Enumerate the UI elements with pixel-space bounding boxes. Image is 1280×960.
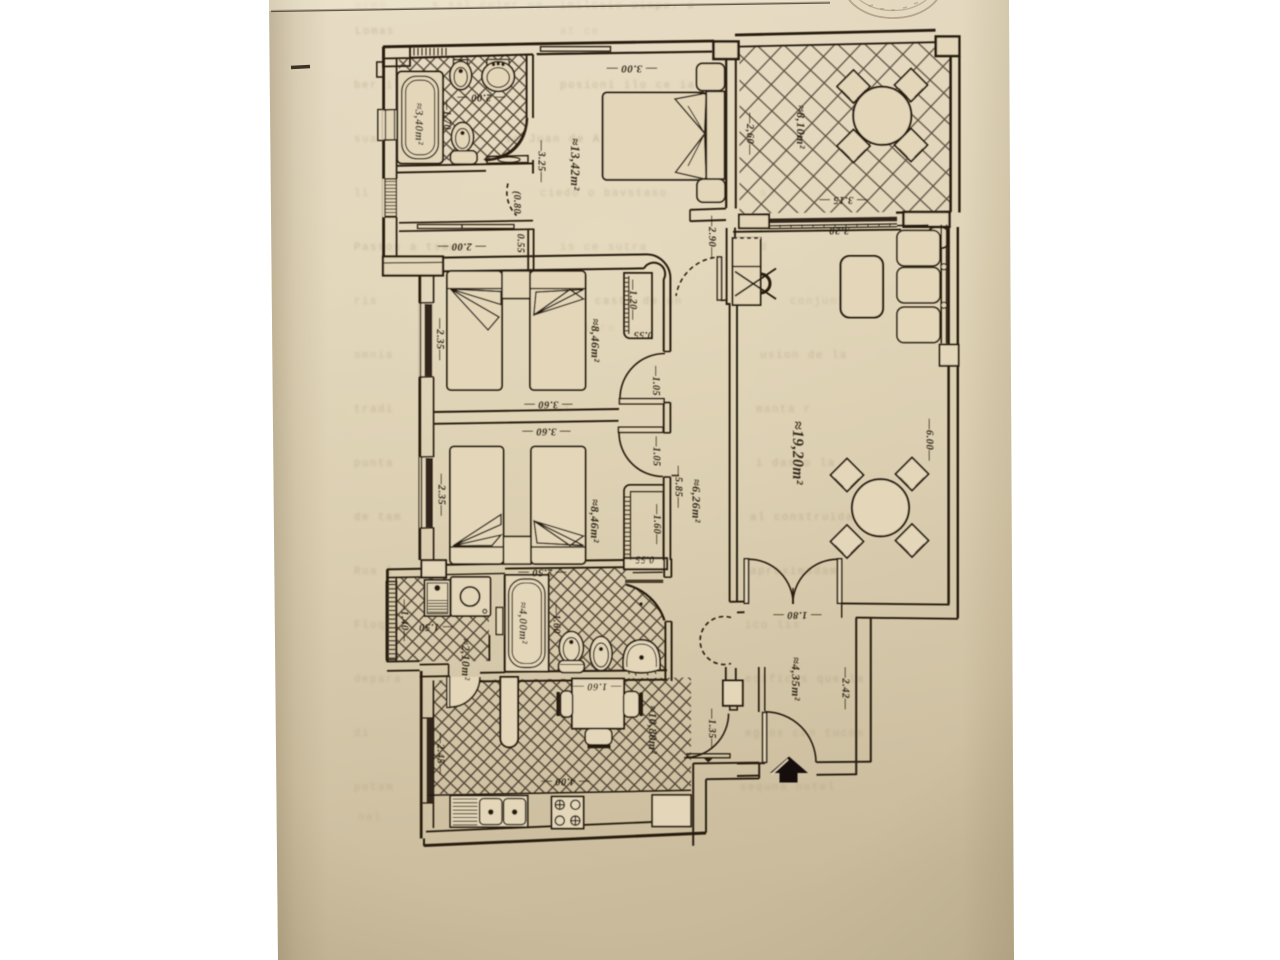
svg-text:(0.80: (0.80 [511,191,522,214]
svg-text:—1.35—: —1.35— [706,708,717,750]
svg-text:≈8,46m²: ≈8,46m² [588,499,602,543]
svg-text:nal: nal [358,812,382,824]
svg-text:posioni ilo ce ia: posioni ilo ce ia [560,80,696,92]
svg-text:— 4.00 —: — 4.00 — [541,776,591,787]
svg-text:— 1.50: — 1.50 [419,621,455,632]
svg-text:≈4,35m²: ≈4,35m² [789,657,803,701]
svg-text:sequna notel: sequna notel [740,782,836,794]
svg-text:—1.05: —1.05 [651,436,662,467]
svg-text:manta r: manta r [756,404,812,416]
svg-text:aproximadam: aproximadam [750,566,838,578]
svg-text:— 3.20 —: — 3.20 — [815,225,865,236]
svg-text:ber il: ber il [354,80,402,92]
svg-text:—2,60—: —2,60— [744,112,755,155]
svg-text:≈3,40m²: ≈3,40m² [413,103,425,145]
svg-text:— 2.50 —: — 2.50 — [518,567,568,578]
svg-text:ico lis: ico lis [745,620,801,632]
svg-text:sua: sua [354,134,378,146]
svg-text:≈13,42m²: ≈13,42m² [568,138,582,190]
svg-text:≈10,80m²: ≈10,80m² [646,706,658,755]
svg-text:— 2.00 —: — 2.00 — [437,241,487,252]
svg-text:al construida: al construida [750,512,854,524]
svg-text:depara: depara [354,674,402,686]
svg-text:—1.60—: —1.60— [651,503,662,545]
svg-text:0.55: 0.55 [635,554,655,565]
svg-text:≈2,10m²: ≈2,10m² [459,638,471,680]
svg-text:≈8,10m²: ≈8,10m² [794,105,808,149]
svg-text:≈19,20m²: ≈19,20m² [789,421,806,485]
svg-text:—2.35—: —2.35— [434,317,445,360]
svg-text:di: di [354,728,370,740]
svg-text:—1.20—: —1.20— [627,279,638,321]
svg-text:≈6,26m²: ≈6,26m² [690,479,704,523]
svg-text:potam: potam [354,782,394,794]
svg-text:Floqua: Floqua [354,620,402,632]
svg-text:—1.05: —1.05 [650,365,661,396]
svg-text:—1.40—: —1.40— [399,598,410,641]
svg-text:li: li [354,188,370,200]
svg-text:—1.70: —1.70 [441,99,452,130]
svg-text:punta: punta [354,458,394,470]
svg-text:—3.25—: —3.25— [536,139,547,182]
svg-text:— 1.80 —: — 1.80 — [773,609,823,620]
svg-text:—2.45—: —2.45— [435,732,446,775]
svg-text:—1.60: —1.60 [551,603,562,634]
svg-text:—6.00—: —6.00— [924,418,935,461]
svg-text:0.55: 0.55 [515,234,526,254]
svg-text:0.55: 0.55 [633,329,653,340]
svg-text:≈4,00m²: ≈4,00m² [517,602,529,644]
svg-text:—5.85—: —5.85— [673,465,684,508]
svg-text:Lomas: Lomas [355,26,395,38]
svg-text:— 1.60 —: — 1.60 — [573,681,623,692]
svg-text:tradi: tradi [354,404,394,416]
svg-text:≈8,46m²: ≈8,46m² [589,318,603,362]
svg-text:usion de la: usion de la [760,350,848,362]
svg-text:—2.90—: —2.90— [706,215,717,258]
svg-text:—2.42—: —2.42— [840,666,851,709]
svg-text:— 3.60 —: — 3.60 — [522,426,572,437]
svg-text:—2.35—: —2.35— [436,473,447,516]
svg-text:is ce sutra: is ce sutra [560,242,648,254]
svg-text:de tam: de tam [354,512,402,524]
svg-text:— 3.00 —: — 3.00 — [606,63,658,75]
svg-text:— 3.60 —: — 3.60 — [524,399,574,410]
svg-text:— 2.00 —: — 2.00 — [457,92,507,103]
svg-text:omnia: omnia [354,350,394,362]
svg-text:ciedo o bavstaso: ciedo o bavstaso [540,188,668,200]
svg-text:at ce: at ce [560,26,600,38]
svg-text:— 3.15 —: — 3.15 — [819,194,869,205]
svg-text:ris: ris [354,296,378,308]
